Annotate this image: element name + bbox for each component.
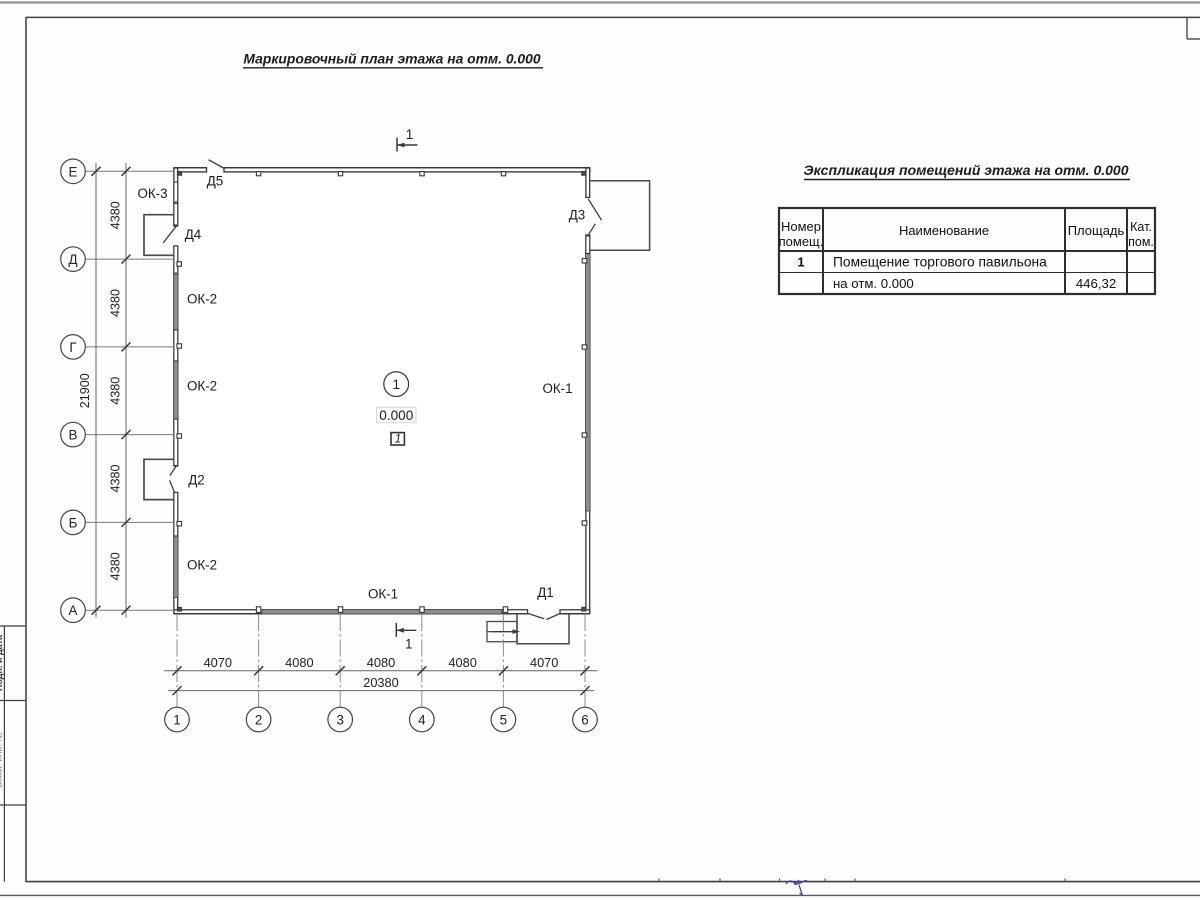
- svg-text:1: 1: [406, 127, 414, 142]
- svg-text:4070: 4070: [204, 655, 232, 670]
- svg-text:4080: 4080: [448, 655, 476, 670]
- svg-text:1: 1: [395, 434, 401, 446]
- svg-text:ОК-1: ОК-1: [542, 381, 572, 396]
- svg-text:21900: 21900: [78, 373, 92, 408]
- svg-text:Маркировочный план этажа на от: Маркировочный план этажа на отм. 0.000: [243, 51, 540, 67]
- svg-text:4080: 4080: [367, 655, 395, 670]
- svg-text:Кат.: Кат.: [1130, 220, 1152, 234]
- svg-text:ОК-2: ОК-2: [187, 558, 217, 573]
- svg-text:помещ.: помещ.: [779, 234, 824, 249]
- svg-text:Площадь: Площадь: [1068, 223, 1125, 238]
- svg-text:4070: 4070: [530, 655, 558, 670]
- svg-text:Наименование: Наименование: [899, 223, 989, 238]
- svg-text:Д2: Д2: [188, 473, 205, 488]
- svg-text:пом.: пом.: [1128, 235, 1154, 249]
- svg-text:Е: Е: [69, 164, 78, 179]
- svg-text:Д: Д: [68, 252, 77, 267]
- svg-text:Б: Б: [69, 515, 78, 530]
- svg-text:4: 4: [418, 713, 426, 728]
- svg-text:6: 6: [581, 713, 588, 728]
- svg-text:ОК-2: ОК-2: [187, 292, 217, 307]
- svg-text:В: В: [69, 428, 78, 443]
- svg-text:Помещение торгового павильона: Помещение торгового павильона: [833, 255, 1047, 270]
- svg-text:4380: 4380: [109, 552, 123, 580]
- svg-text:А: А: [69, 603, 78, 618]
- svg-text:Д5: Д5: [207, 174, 224, 189]
- svg-text:3: 3: [336, 713, 343, 728]
- svg-text:4380: 4380: [109, 289, 123, 317]
- svg-text:4080: 4080: [285, 655, 313, 670]
- svg-text:Подп. и дата: Подп. и дата: [0, 634, 4, 691]
- svg-text:Д1: Д1: [537, 585, 554, 600]
- svg-text:4380: 4380: [109, 464, 123, 492]
- svg-text:Г: Г: [69, 340, 76, 355]
- svg-text:1: 1: [173, 713, 180, 728]
- svg-text:446,32: 446,32: [1076, 276, 1116, 291]
- svg-text:1: 1: [797, 255, 804, 270]
- svg-text:ОК-1: ОК-1: [368, 587, 398, 602]
- svg-text:ОК-2: ОК-2: [187, 379, 217, 394]
- svg-text:Номер: Номер: [781, 219, 821, 234]
- svg-text:2: 2: [255, 713, 262, 728]
- svg-text:4380: 4380: [109, 201, 123, 229]
- svg-text:1: 1: [405, 637, 413, 652]
- svg-text:0.000: 0.000: [379, 408, 413, 423]
- svg-text:20380: 20380: [363, 675, 399, 690]
- svg-text:1: 1: [392, 377, 400, 392]
- svg-text:Д3: Д3: [569, 208, 586, 223]
- svg-text:4380: 4380: [109, 377, 123, 405]
- svg-text:5: 5: [500, 713, 507, 728]
- svg-text:Экспликация помещений этажа на: Экспликация помещений этажа на отм. 0.00…: [804, 162, 1129, 178]
- svg-text:на отм. 0.000: на отм. 0.000: [833, 276, 914, 291]
- svg-text:ОК-3: ОК-3: [137, 186, 167, 201]
- svg-text:Взам. инв. №: Взам. инв. №: [0, 732, 4, 788]
- svg-text:Д4: Д4: [185, 227, 202, 242]
